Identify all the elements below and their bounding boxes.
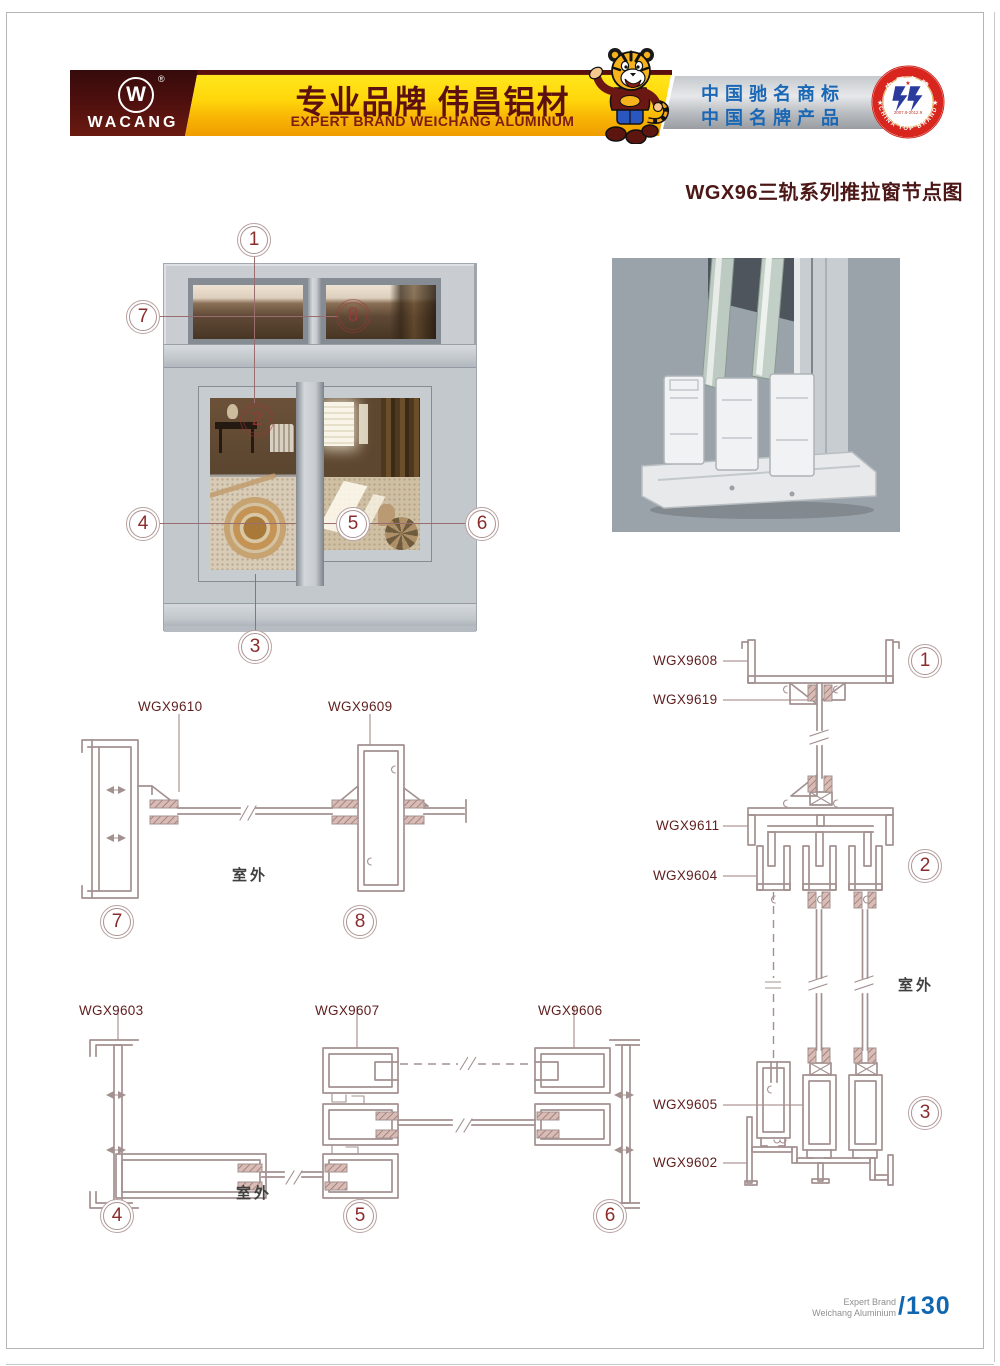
section-callout-1: 1 xyxy=(908,644,942,678)
photo-callout-3: 3 xyxy=(238,630,272,664)
profile-label-wgx9606: WGX9606 xyxy=(538,1003,602,1018)
bright-window xyxy=(324,402,354,446)
callout-line-1 xyxy=(254,257,255,403)
profile-label-wgx9609: WGX9609 xyxy=(328,699,392,714)
profile-label-wgx9605: WGX9605 xyxy=(653,1097,717,1112)
callout-line-5-6 xyxy=(370,523,465,524)
render-3d xyxy=(612,258,900,532)
transom-bar xyxy=(164,344,476,368)
photo-callout-2: 2 xyxy=(240,403,274,437)
tiger-mascot-icon xyxy=(586,46,676,144)
badge-star-left: ★ xyxy=(877,99,883,107)
section-callout-2: 2 xyxy=(908,849,942,883)
catalog-page: W ® WACANG 专业品牌 伟昌铝材 EXPERT BRAND WEICHA… xyxy=(0,0,1000,1366)
profile-label-wgx9608: WGX9608 xyxy=(653,653,717,668)
logo-brand: WACANG xyxy=(78,114,188,132)
lower-window xyxy=(164,368,476,603)
photo-callout-1: 1 xyxy=(237,223,271,257)
radiator xyxy=(270,424,294,452)
sliding-sash-right xyxy=(310,386,432,562)
footer-page-number: /130 xyxy=(898,1292,951,1321)
sill-lip xyxy=(164,626,476,632)
profile-label-wgx9619: WGX9619 xyxy=(653,692,717,707)
footer-brand: Expert Brand Weichang Aluminium xyxy=(700,1297,896,1319)
outdoor-label-1: 室外 xyxy=(232,864,268,885)
banner-subtitle: EXPERT BRAND WEICHANG ALUMINUM xyxy=(245,113,620,129)
profile-label-wgx9603: WGX9603 xyxy=(79,1003,143,1018)
profile-label-wgx9604: WGX9604 xyxy=(653,868,717,883)
meeting-stile xyxy=(296,382,324,586)
china-top-brand-badge: 中国名牌 CHINA TOP BRAND ★ ★ ★ 2007.9-2012.9 xyxy=(870,64,946,140)
profile-label-wgx9602: WGX9602 xyxy=(653,1155,717,1170)
badge-star-center: ★ xyxy=(905,80,910,87)
section-callout-5: 5 xyxy=(343,1199,377,1233)
section-callout-8: 8 xyxy=(343,905,377,939)
badge-star-right: ★ xyxy=(932,99,938,107)
window-photo xyxy=(163,263,477,631)
floor-medallion xyxy=(223,496,287,560)
logo-icon: W xyxy=(118,77,154,113)
section-callout-6: 6 xyxy=(593,1199,627,1233)
callout-line-3 xyxy=(255,574,256,630)
badge-dates: 2007.9-2012.9 xyxy=(894,110,923,115)
page-title: WGX96三轨系列推拉窗节点图 xyxy=(600,176,963,205)
transom-pane-left xyxy=(188,278,308,344)
photo-callout-8: 8 xyxy=(336,299,370,333)
bust-sculpture xyxy=(227,404,238,419)
footer-brand-line-1: Expert Brand xyxy=(700,1297,896,1308)
section-callout-7: 7 xyxy=(100,905,134,939)
bottom-frame xyxy=(164,603,476,626)
profile-label-wgx9607: WGX9607 xyxy=(315,1003,379,1018)
photo-callout-6: 6 xyxy=(465,507,499,541)
outdoor-label-3: 室外 xyxy=(898,974,934,995)
transom-mullion xyxy=(308,278,321,344)
spiral-sculpture xyxy=(385,517,418,550)
section-callout-3: 3 xyxy=(908,1096,942,1130)
photo-callout-7: 7 xyxy=(126,300,160,334)
photo-callout-5: 5 xyxy=(336,507,370,541)
bright-window-2 xyxy=(359,404,368,444)
registered-mark: ® xyxy=(158,74,165,84)
outdoor-label-2: 室外 xyxy=(236,1182,272,1203)
callout-line-7-8 xyxy=(160,316,338,317)
photo-callout-4: 4 xyxy=(126,507,160,541)
page-edge-right xyxy=(994,12,995,1362)
section-drawing-4-5-6 xyxy=(60,1000,640,1230)
page-edge-bottom xyxy=(6,1364,994,1365)
footer-brand-line-2: Weichang Aluminium xyxy=(700,1308,896,1319)
section-callout-4: 4 xyxy=(100,1199,134,1233)
profile-label-wgx9610: WGX9610 xyxy=(138,699,202,714)
logo-monogram: W xyxy=(126,83,146,107)
profile-label-wgx9611: WGX9611 xyxy=(656,818,719,833)
logo-block: W ® WACANG xyxy=(70,70,198,136)
